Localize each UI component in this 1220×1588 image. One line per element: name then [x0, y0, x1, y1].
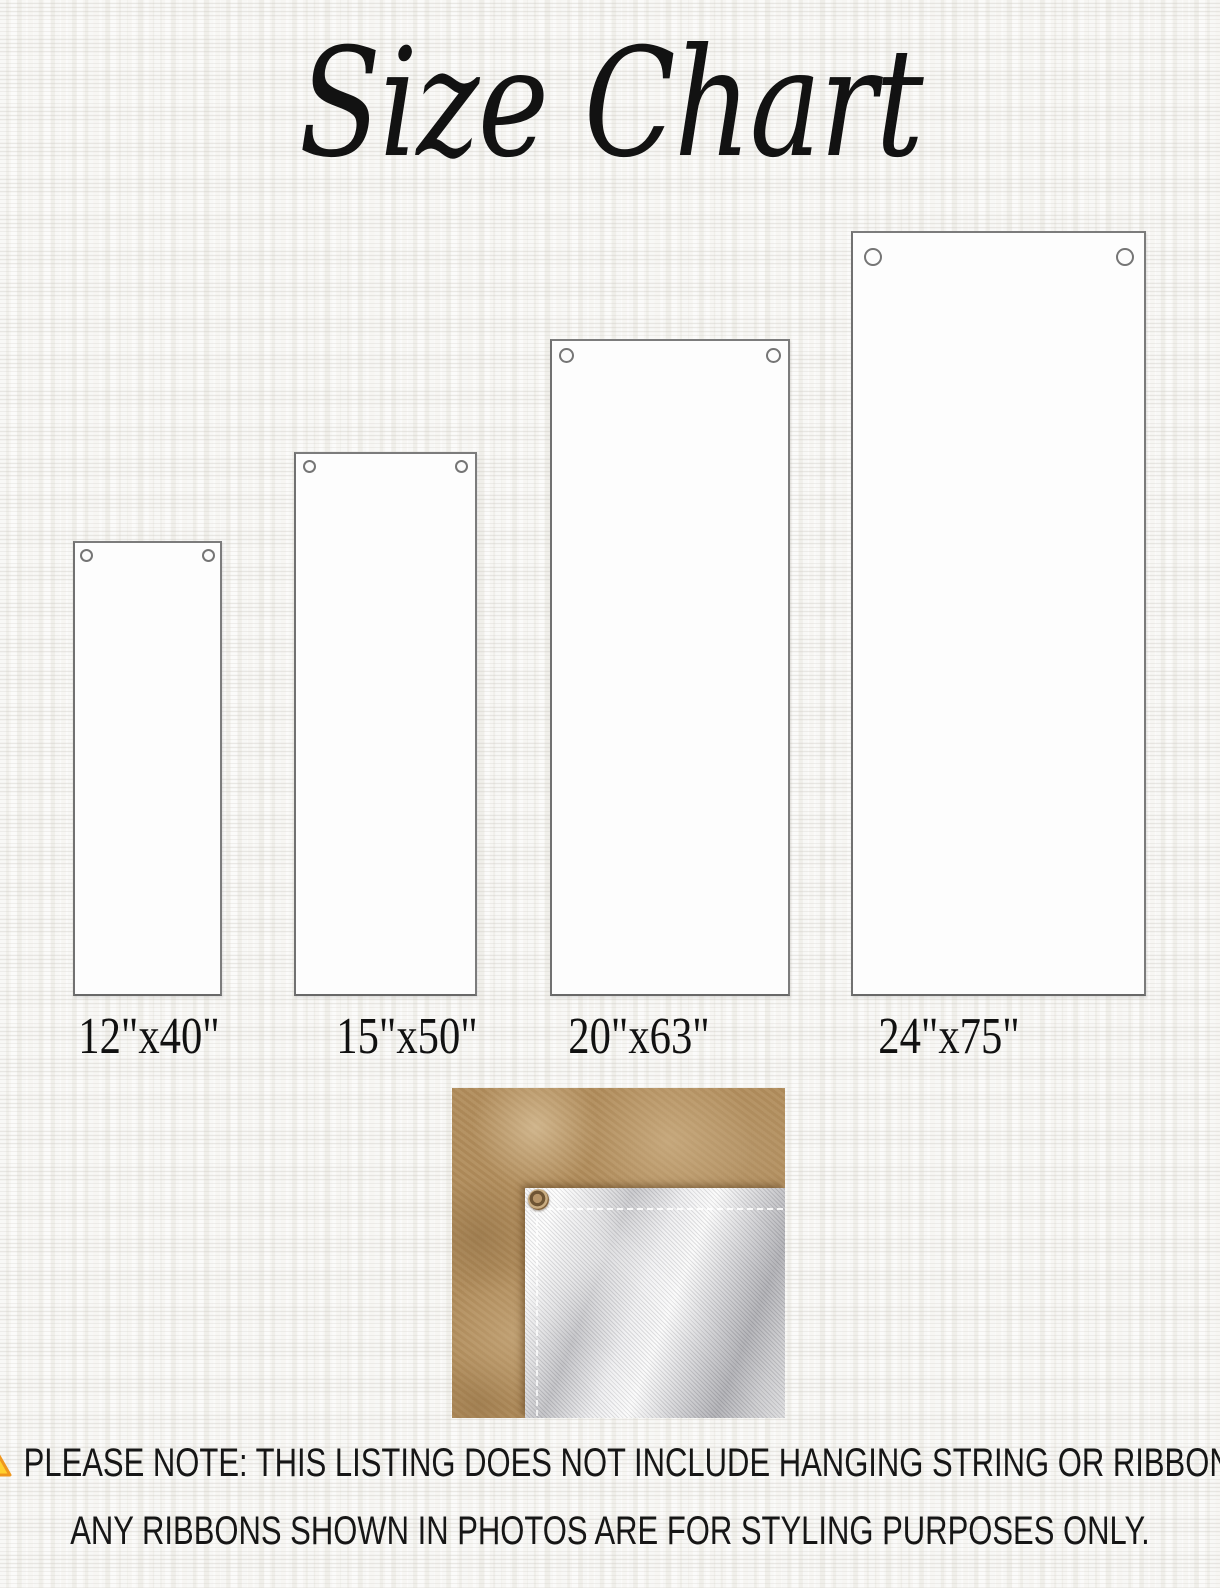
banner-size-label: 24"x75": [878, 1008, 1019, 1065]
banner-size-label: 15"x50": [336, 1008, 477, 1065]
note-line-1: PLEASE NOTE: THIS LISTING DOES NOT INCLU…: [0, 1442, 1220, 1484]
banner-outline-12x40: [73, 541, 222, 996]
banner-outline-20x63: [550, 339, 790, 996]
warning-triangle-icon: [0, 1448, 12, 1478]
page-title: Size Chart: [298, 14, 921, 194]
note-line-2-text: ANY RIBBONS SHOWN IN PHOTOS ARE FOR STYL…: [70, 1508, 1150, 1555]
note-line-1-text: PLEASE NOTE: THIS LISTING DOES NOT INCLU…: [24, 1440, 1220, 1487]
grommet-icon: [202, 549, 215, 562]
banner-size-label: 20"x63": [568, 1008, 709, 1065]
grommet-icon: [559, 348, 574, 363]
grommet-icon: [455, 460, 468, 473]
brass-grommet-icon: [528, 1189, 549, 1210]
size-chart-page: Size Chart 12"x40" 15"x50" 20"x63" 24"x7…: [0, 0, 1220, 1588]
banner-fabric-closeup: [525, 1188, 785, 1418]
grommet-icon: [1116, 248, 1134, 266]
banner-outline-15x50: [294, 452, 477, 996]
stitch-line: [536, 1190, 538, 1416]
grommet-icon: [864, 248, 882, 266]
banner-outline-24x75: [851, 231, 1146, 996]
banner-size-label: 12"x40": [78, 1008, 219, 1065]
grommet-icon: [80, 549, 93, 562]
product-photo: [452, 1088, 785, 1418]
note-line-2: ANY RIBBONS SHOWN IN PHOTOS ARE FOR STYL…: [0, 1510, 1220, 1552]
stitch-line: [527, 1208, 783, 1210]
page-title-row: Size Chart: [0, 14, 1220, 194]
grommet-icon: [303, 460, 316, 473]
grommet-icon: [766, 348, 781, 363]
